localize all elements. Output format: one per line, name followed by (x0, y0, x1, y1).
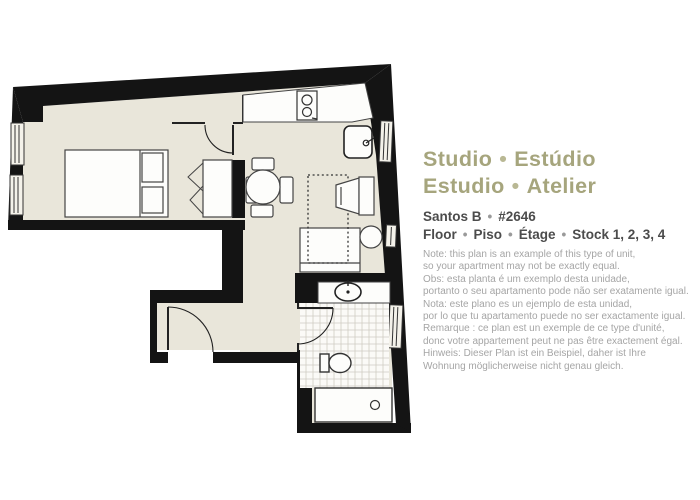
unit-number: #2646 (498, 209, 536, 224)
wall-corridor-bottom-left (150, 352, 168, 363)
pillow (142, 153, 163, 182)
unit-type-title-line1: Studio•Estúdio (423, 146, 695, 173)
page: Studio•Estúdio Estudio•Atelier Santos B•… (0, 0, 700, 500)
note-line: Wohnung möglicherweise nicht genau gleic… (423, 361, 695, 373)
note-line: portanto o seu apartamento pode não ser … (423, 286, 695, 298)
note-line: Obs: esta planta é um exemplo desta unid… (423, 274, 695, 286)
armchair (336, 177, 374, 215)
note-line: so your apartment may not be exactly equ… (423, 261, 695, 273)
bullet-separator: • (562, 227, 567, 242)
kitchen-sink (344, 126, 374, 158)
note-line: por lo que tu apartamento puede no ser e… (423, 311, 695, 323)
bathroom-vanity (318, 280, 390, 303)
unit-id-line: Santos B•#2646 (423, 209, 695, 225)
side-table (360, 226, 382, 248)
floor-line: Floor•Piso•Étage•Stock 1, 2, 3, 4 (423, 227, 695, 243)
wall-nook-top (295, 273, 392, 282)
window-right-2 (386, 225, 397, 247)
toilet (320, 354, 351, 373)
note-line: Note: this plan is an example of this ty… (423, 249, 695, 261)
disclaimer-note: Note: this plan is an example of this ty… (423, 249, 695, 373)
window-left-2 (10, 175, 23, 215)
window-left-1 (11, 123, 24, 165)
bullet-separator: • (488, 209, 493, 224)
window-bathroom (388, 305, 403, 349)
wall-bathroom-bottom (297, 423, 411, 433)
wall-corridor-bottom-right (213, 352, 310, 363)
wall-corridor-top (150, 290, 243, 303)
dining-table (246, 170, 280, 204)
double-bed (65, 150, 168, 217)
unit-type-title-line2: Estudio•Atelier (423, 173, 695, 200)
wall-bedroom-bottom (8, 220, 245, 230)
pillow (142, 187, 163, 213)
dining-chair (251, 205, 273, 217)
window-right-1 (379, 121, 393, 162)
note-line: donc votre appartement peut ne pas être … (423, 336, 695, 348)
info-panel: Studio•Estúdio Estudio•Atelier Santos B•… (423, 146, 695, 373)
sofa (300, 228, 360, 272)
bullet-separator: • (499, 147, 507, 171)
bedroom (65, 150, 232, 217)
shower (315, 388, 392, 422)
bullet-separator: • (512, 174, 520, 198)
building-name: Santos B (423, 209, 482, 224)
bullet-separator: • (508, 227, 513, 242)
note-line: Nota: este plano es un ejemplo de esta u… (423, 299, 695, 311)
bullet-separator: • (463, 227, 468, 242)
note-line: Remarque : ce plan est un exemple de ce … (423, 323, 695, 335)
wall-stub-wardrobe (232, 160, 245, 218)
dining-chair (280, 177, 293, 203)
note-line: Hinweis: Dieser Plan ist ein Beispiel, d… (423, 348, 695, 360)
dining-chair (252, 158, 274, 170)
stove (297, 91, 317, 120)
bathroom-tiles (300, 303, 389, 388)
